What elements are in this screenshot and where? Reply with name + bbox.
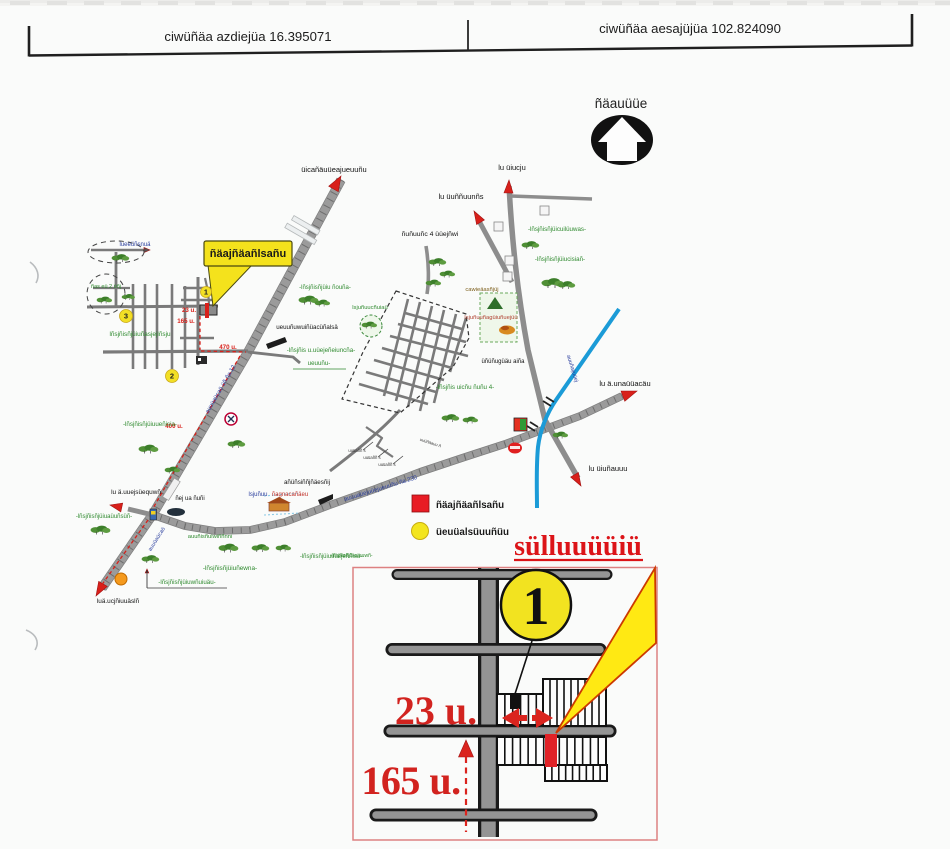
svg-text:ciwüñäa aesajüjüa 102.824090: ciwüñäa aesajüjüa 102.824090 bbox=[599, 21, 781, 36]
svg-text:ñej ua ñuñi: ñej ua ñuñi bbox=[175, 496, 204, 502]
svg-text:sülluuüüiü: sülluuüüiü bbox=[514, 531, 642, 562]
svg-text:-lñsjñisñjüiuaüuñsüñ-: -lñsjñisñjüiuaüuñsüñ- bbox=[76, 514, 132, 520]
svg-text:lñsjñisñjüiuñasjejlñsju: lñsjñisñjüiuñasjejlñsju bbox=[109, 331, 171, 338]
svg-text:lu üuññuunñs: lu üuññuunñs bbox=[438, 192, 483, 201]
svg-text:-lñsjñisñjüiucisiañ-: -lñsjñisñjüiucisiañ- bbox=[535, 256, 585, 263]
svg-text:uuüaññ s: uuüaññ s bbox=[378, 462, 395, 467]
svg-text:165 u.: 165 u. bbox=[177, 318, 195, 325]
svg-text:2: 2 bbox=[170, 372, 174, 381]
svg-text:añüñsiññjñäesñij: añüñsiññjñäesñij bbox=[284, 479, 330, 486]
svg-text:lsjuñuucñuiaü: lsjuñuucñuiaü bbox=[352, 305, 387, 311]
svg-text:lsjuñuuñagüiuñuejüü: lsjuñuuñagüiuñuejüü bbox=[464, 315, 517, 321]
svg-text:-lñsjñisñjüiuñewna-: -lñsjñisñjüiuñewna- bbox=[203, 565, 257, 572]
svg-text:ñuñuuñc 4 üüejñwi: ñuñuuñc 4 üüejñwi bbox=[402, 231, 459, 238]
svg-text:-lñsjñisñjüiu ñouña-: -lñsjñisñjüiu ñouña- bbox=[299, 285, 351, 291]
svg-text:ueuuñuwuiñüacüñalsä: ueuuñuwuiñüacüñalsä bbox=[276, 324, 338, 331]
svg-text:lu üiuñauuu: lu üiuñauuu bbox=[589, 464, 628, 473]
svg-text:lu ä.unaüüacäu: lu ä.unaüüacäu bbox=[599, 379, 650, 388]
svg-text:ñäajñäañlsañu: ñäajñäañlsañu bbox=[436, 500, 504, 511]
svg-text:ueuuñu-: ueuuñu- bbox=[308, 360, 331, 367]
svg-text:165 u.: 165 u. bbox=[361, 758, 460, 803]
svg-text:üeuüalsüuuñüu: üeuüalsüuuñüu bbox=[436, 527, 509, 538]
svg-text:-lñsjñisñjüiuwñuiuäu-: -lñsjñisñjüiuwñuiuäu- bbox=[158, 579, 215, 586]
svg-text:lu ä.uuejsüequwñ: lu ä.uuejsüequwñ bbox=[111, 489, 161, 496]
svg-text:1: 1 bbox=[204, 288, 208, 297]
svg-text:üñüñugüäu aiña: üñüñugüäu aiña bbox=[481, 359, 525, 365]
svg-text:ciwüñäa azdiejüa 16.395071: ciwüñäa azdiejüa 16.395071 bbox=[164, 29, 331, 44]
svg-text:uuüaññ s: uuüaññ s bbox=[363, 455, 380, 460]
svg-text:lueeüñsnuä: lueeüñsnuä bbox=[119, 242, 151, 248]
svg-text:23 u.: 23 u. bbox=[395, 688, 477, 733]
svg-text:uuüaññ s: uuüaññ s bbox=[348, 448, 365, 453]
svg-text:ñäauüüe: ñäauüüe bbox=[595, 96, 648, 111]
svg-text:ñagnacañäeu: ñagnacañäeu bbox=[272, 492, 308, 498]
svg-text:1: 1 bbox=[523, 576, 550, 636]
svg-text:lu üiucju: lu üiucju bbox=[498, 163, 526, 172]
svg-text:3: 3 bbox=[124, 312, 128, 321]
svg-text:cawieäasñjüj: cawieäasñjüj bbox=[465, 287, 498, 293]
svg-text:23 u.: 23 u. bbox=[182, 307, 196, 314]
svg-text:auuñisñulwiññnni: auuñisñulwiññnni bbox=[188, 534, 232, 540]
svg-text:470 u.: 470 u. bbox=[219, 344, 237, 351]
svg-text:ñas eü 2 üñj: ñas eü 2 üñj bbox=[91, 284, 121, 290]
svg-text:luä.ucjñiuuäslñ: luä.ucjñiuuäslñ bbox=[97, 598, 140, 605]
svg-text:-lñsjñisñjüiuuauwñ-: -lñsjñisñjüiuuauwñ- bbox=[330, 553, 373, 559]
svg-text:-lñsjñis u.uüejeñeiuncña-: -lñsjñis u.uüejeñeiuncña- bbox=[287, 347, 355, 354]
svg-text:-lñsjñis uicñu ñuñu 4-: -lñsjñis uicñu ñuñu 4- bbox=[436, 384, 494, 391]
svg-text:ñäajñäañlsañu: ñäajñäañlsañu bbox=[210, 248, 286, 260]
svg-text:lsjuñuu: lsjuñuu bbox=[248, 492, 267, 498]
svg-text:üicañäuüeajueuuñu: üicañäuüeajueuuñu bbox=[301, 165, 366, 174]
svg-text:-lñsjñisñjüicuilüuwas-: -lñsjñisñjüicuilüuwas- bbox=[528, 226, 586, 233]
svg-text:-lñsjñisñjüiuueñisia-: -lñsjñisñjüiuueñisia- bbox=[123, 421, 177, 428]
